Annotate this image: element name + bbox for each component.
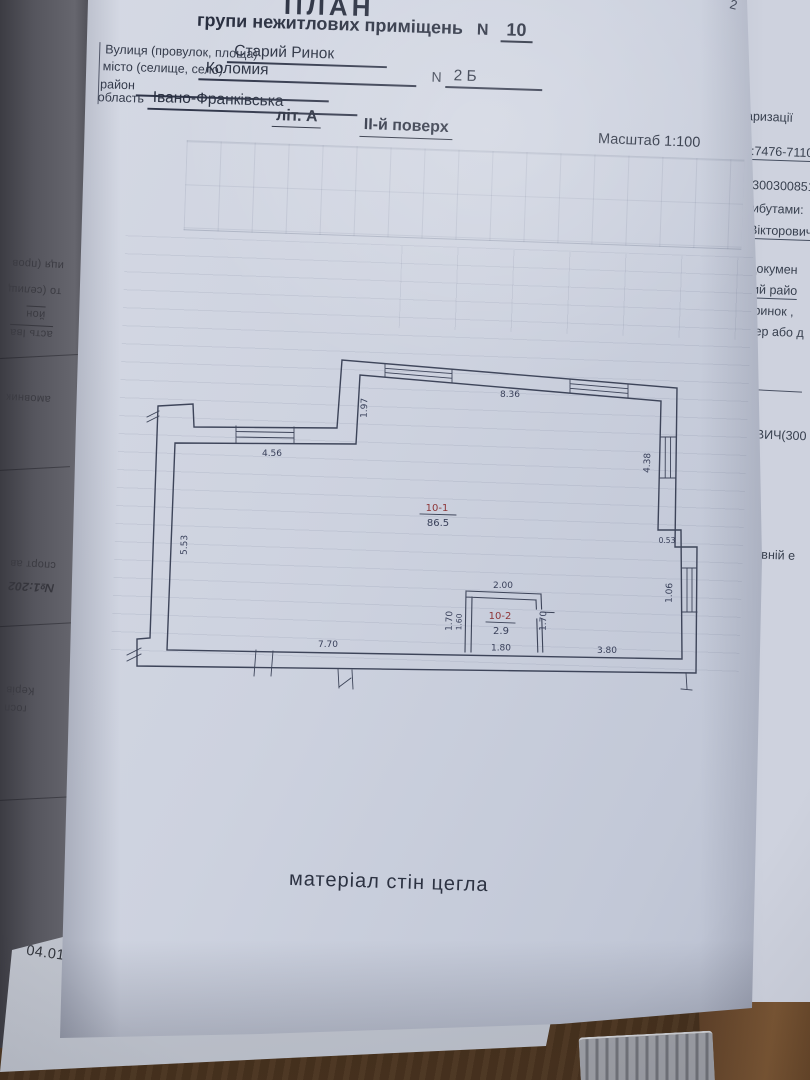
flipped-text-fragment: то (селищ	[8, 283, 62, 298]
flipped-text-fragment: иця (пров	[12, 257, 64, 272]
ruled-line	[0, 466, 70, 471]
flipped-text-fragment: асть Іва	[10, 324, 53, 340]
page-text-fragment: 1:7476-7110-	[744, 144, 810, 163]
table-edge-trim	[579, 1031, 716, 1080]
page-text-fragment: Вікторович	[749, 223, 810, 241]
page-text-fragment: (300300851	[748, 178, 810, 194]
plan-document-page: 2 ПЛАН групи нежитлових приміщеньN10 Вул…	[0, 0, 810, 1080]
flipped-text-fragment: йон	[26, 306, 46, 321]
flipped-text-fragment: спорт ав	[10, 557, 56, 571]
flipped-text-fragment: госп	[4, 701, 27, 714]
ruled-line	[0, 354, 78, 359]
ruled-line	[0, 622, 80, 627]
flipped-text-fragment: амовник	[6, 391, 51, 405]
flipped-text-fragment: Керів	[6, 683, 35, 696]
flipped-text-fragment: №1:202	[8, 579, 55, 595]
page-text-fragment: аризації	[746, 109, 793, 125]
photographed-floor-plan-document: иця (пров то (селищ йон асть Іва амовник…	[0, 0, 810, 1080]
ruled-line	[0, 796, 74, 801]
page-highlight	[0, 0, 810, 1080]
